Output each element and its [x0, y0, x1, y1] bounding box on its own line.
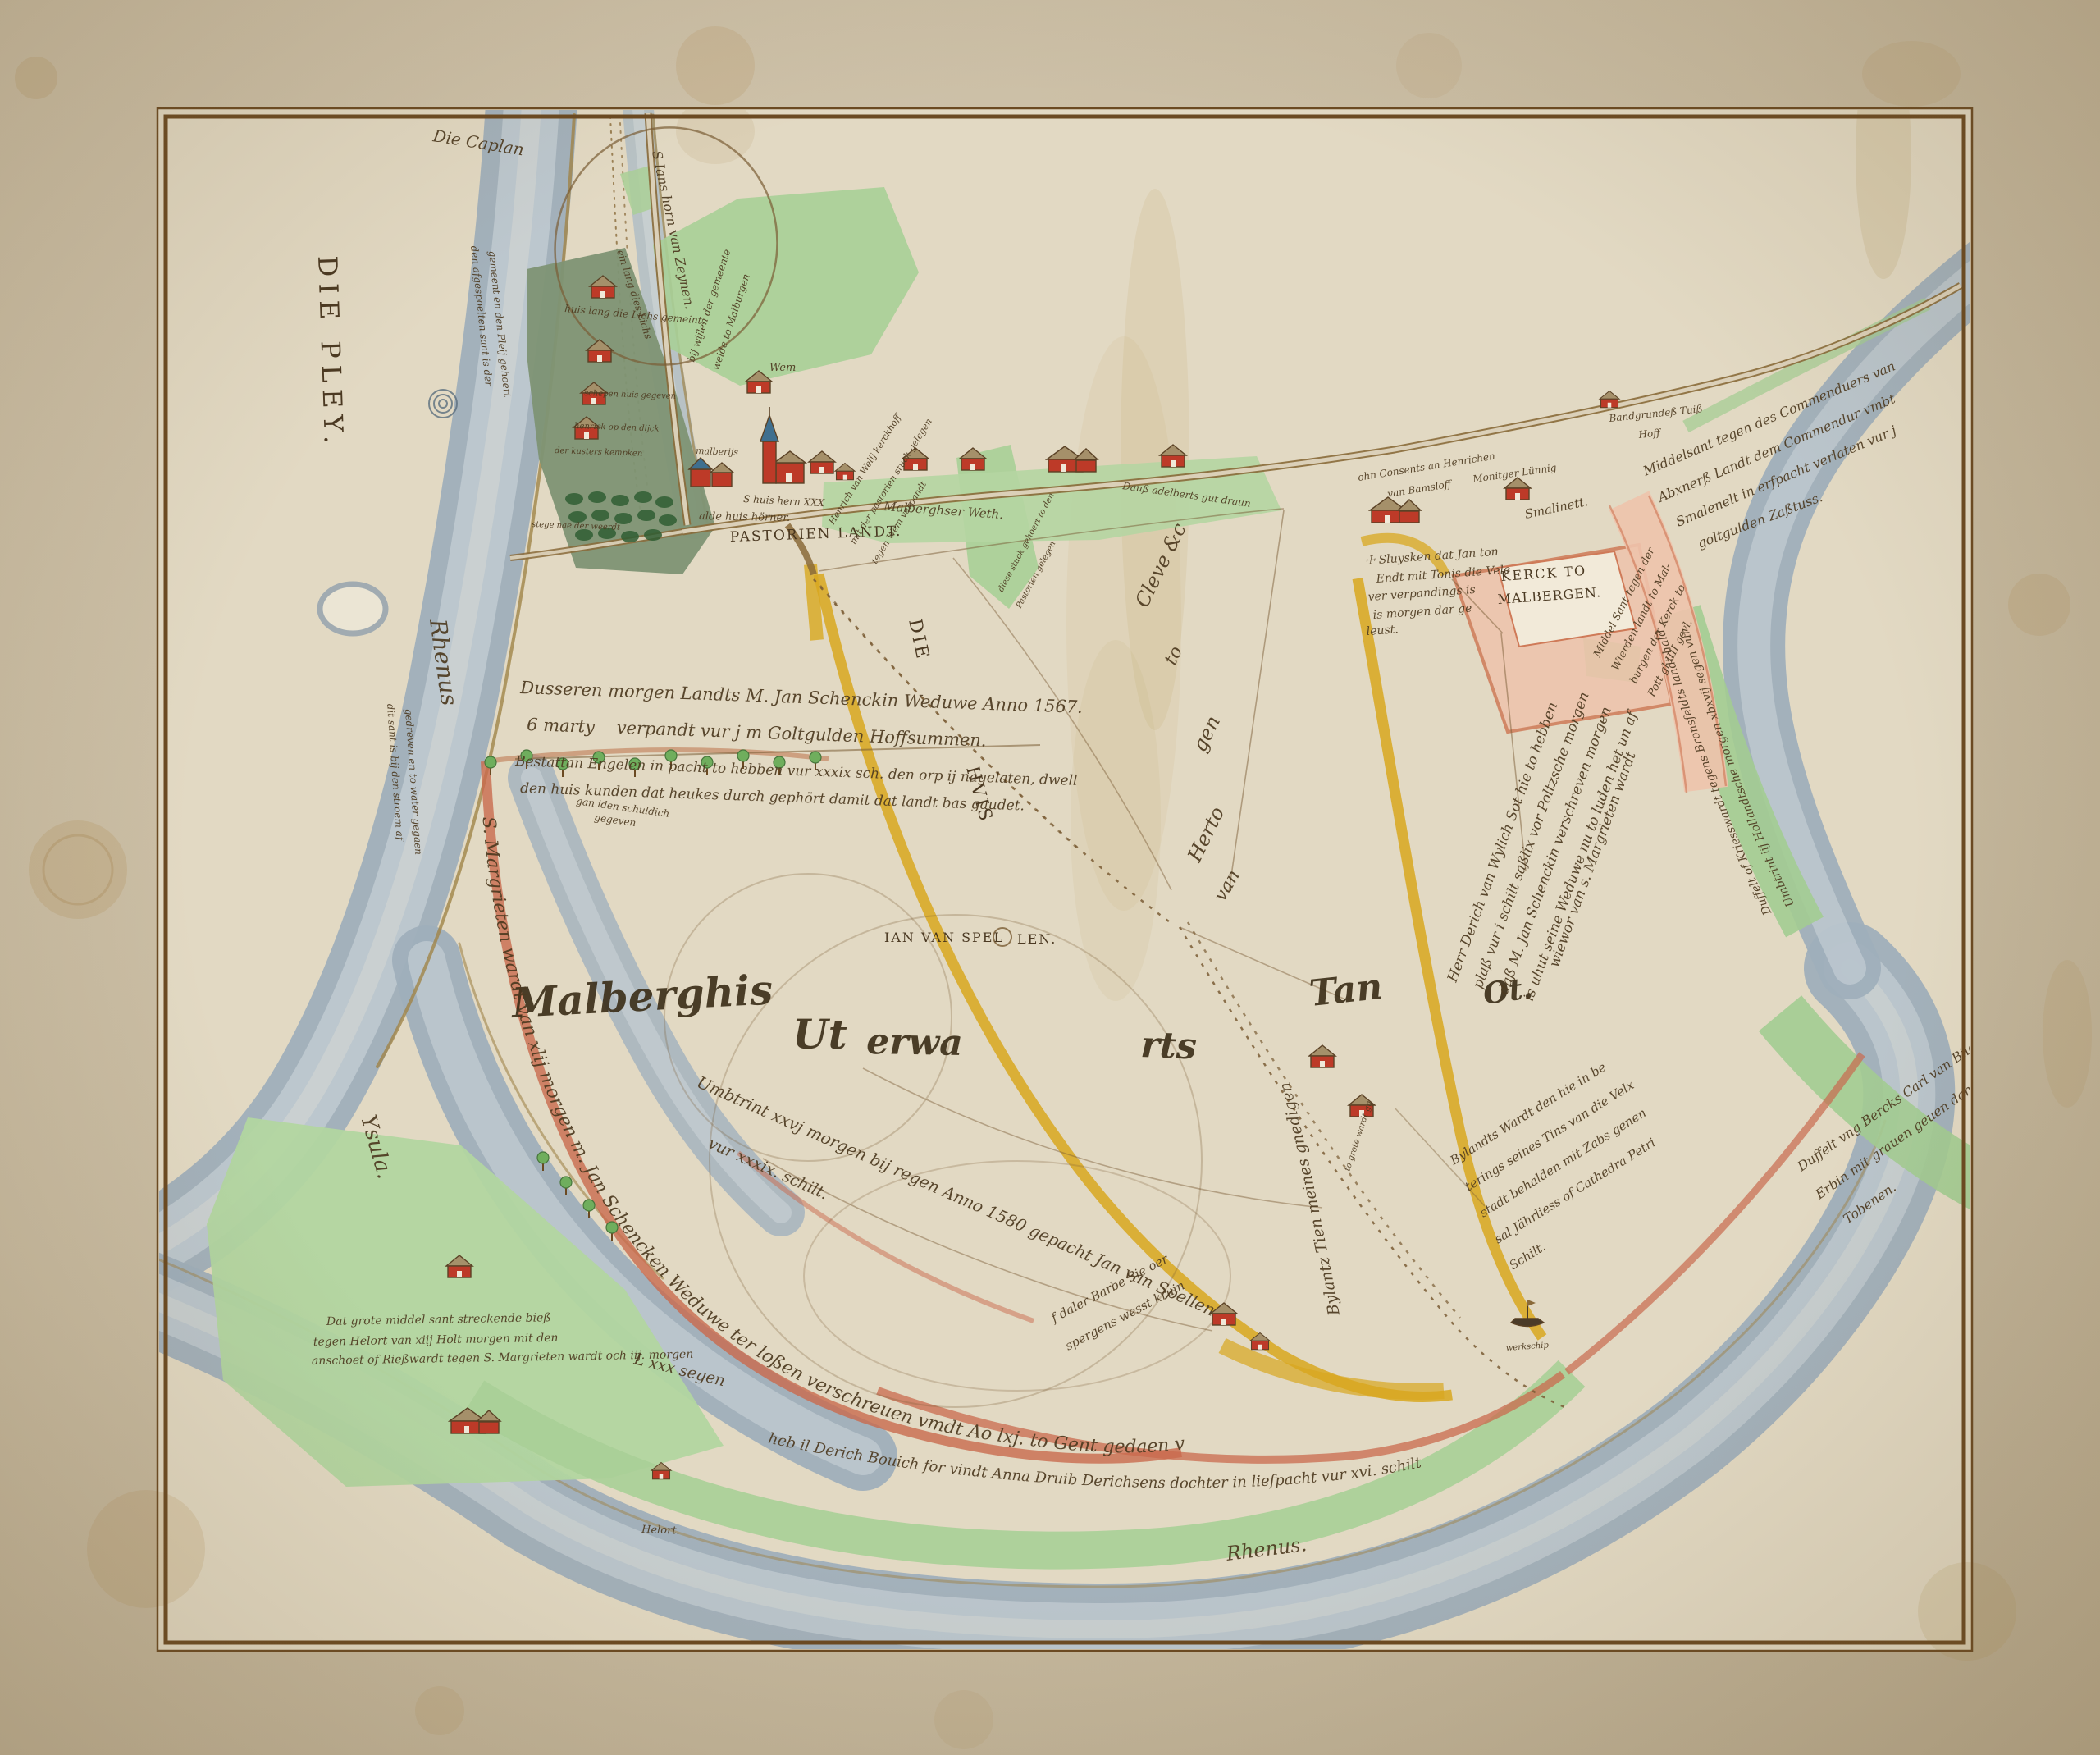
orchard-tree-icon: [659, 514, 677, 526]
label-rts: rts: [1140, 1024, 1198, 1067]
orchard-tree-icon: [637, 510, 655, 521]
label-wem: Wem: [769, 362, 796, 374]
label-tan-big: Tan: [1308, 966, 1385, 1015]
label-ian-van-spel: IAN VAN SPEL: [884, 930, 1004, 945]
label-alde-huis: alde huis hörner.: [699, 510, 790, 524]
orchard-tree-icon: [655, 496, 673, 508]
orchard-tree-icon: [588, 491, 606, 503]
label-sluys-5: leust.: [1366, 623, 1399, 638]
label-erwa: erwa: [866, 1021, 963, 1064]
orchard-tree-icon: [565, 493, 583, 505]
map-canvas: DIE PLEY.Die CaplanS Ians horn van Zeyne…: [0, 0, 2100, 1755]
orchard-tree-icon: [611, 495, 629, 506]
label-len: LEN.: [1017, 931, 1057, 947]
map-sheet: DIE PLEY.Die CaplanS Ians horn van Zeyne…: [0, 0, 2100, 1755]
orchard-tree-icon: [634, 491, 652, 503]
orchard-tree-icon: [591, 510, 609, 521]
label-malberijs: malberijs: [696, 446, 739, 458]
label-ut: Ut: [792, 1010, 847, 1058]
orchard-tree-icon: [644, 529, 662, 541]
pond: [320, 584, 386, 633]
orchard-tree-icon: [621, 531, 639, 542]
label-helort: Helort.: [641, 1524, 680, 1538]
